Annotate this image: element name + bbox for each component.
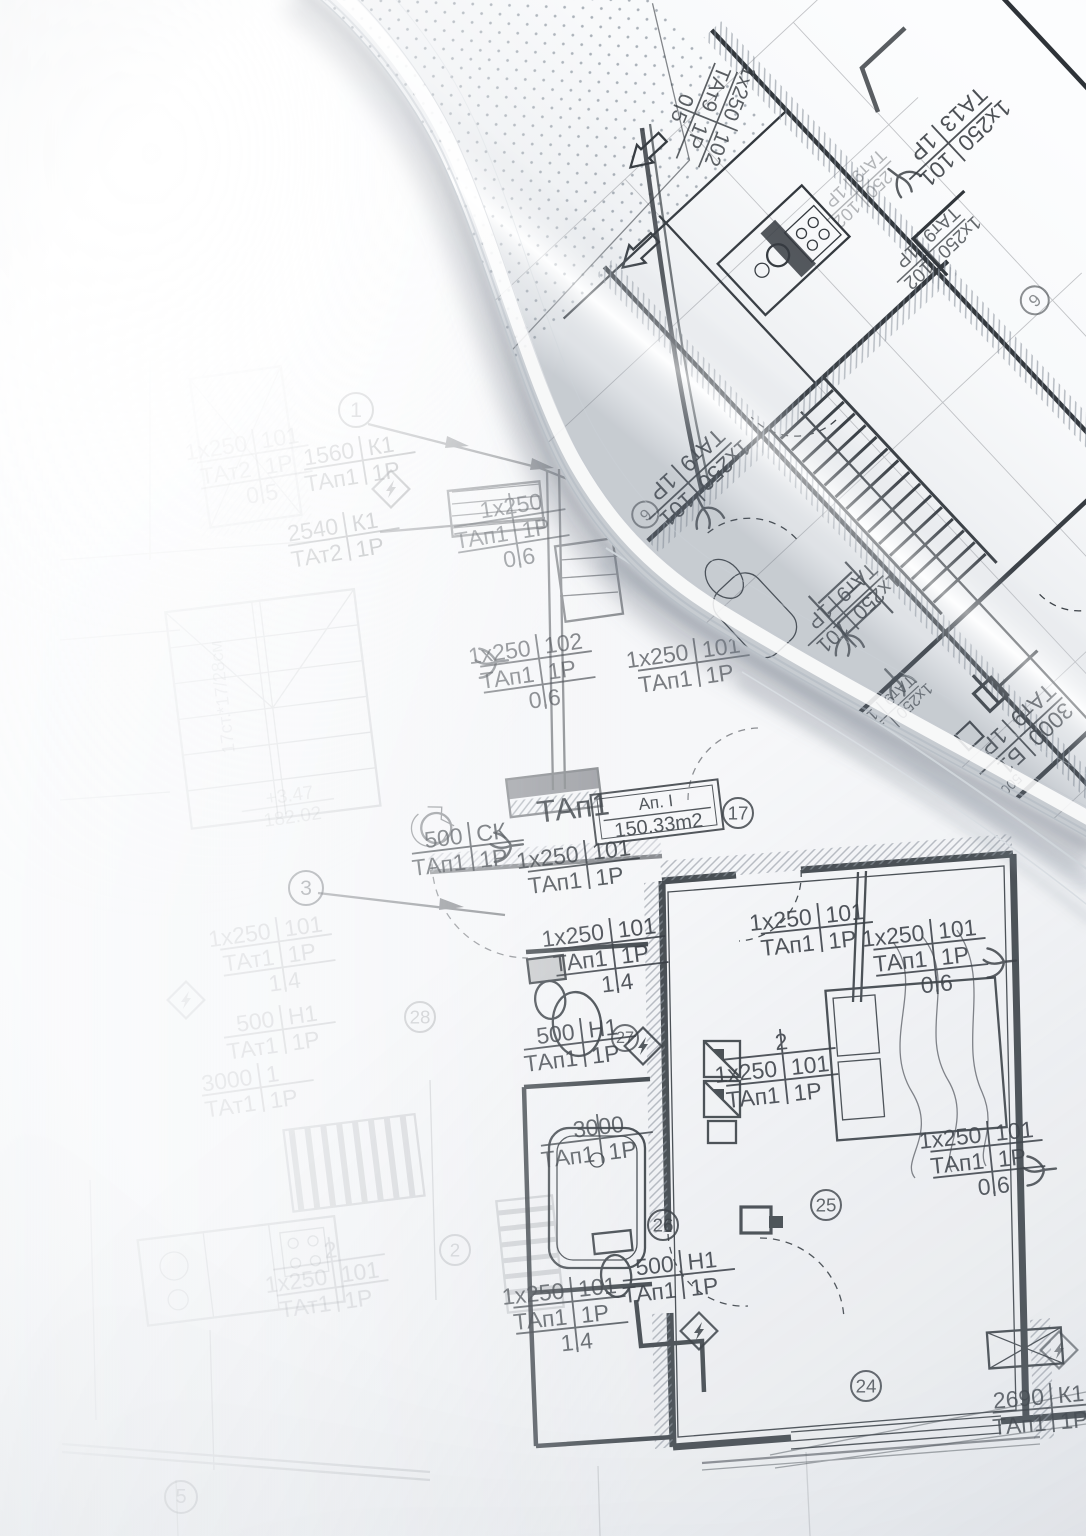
- blueprint-photo: 1317282722625245 1х250101ТАт21Р0.51560К1…: [0, 0, 1086, 1536]
- blueprint-canvas: 1317282722625245 1х250101ТАт21Р0.51560К1…: [0, 0, 1086, 1536]
